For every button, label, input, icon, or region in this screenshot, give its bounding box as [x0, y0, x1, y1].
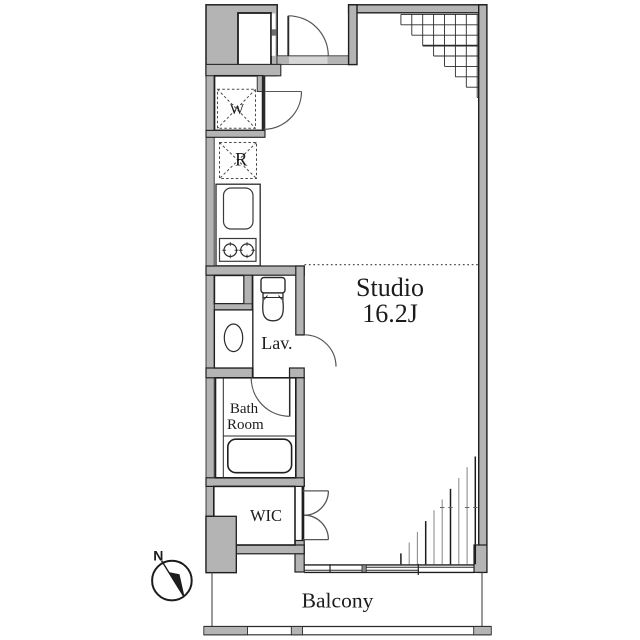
svg-text:16.2J: 16.2J — [362, 299, 418, 328]
svg-text:WIC: WIC — [250, 506, 282, 525]
svg-text:R: R — [235, 151, 248, 171]
svg-text:Bath: Bath — [230, 401, 259, 417]
svg-text:Balcony: Balcony — [302, 589, 374, 613]
svg-text:Room: Room — [227, 417, 264, 433]
svg-text:Studio: Studio — [356, 273, 424, 302]
svg-text:W: W — [230, 102, 245, 118]
svg-text:Lav.: Lav. — [261, 333, 292, 353]
svg-text:N: N — [153, 547, 163, 563]
